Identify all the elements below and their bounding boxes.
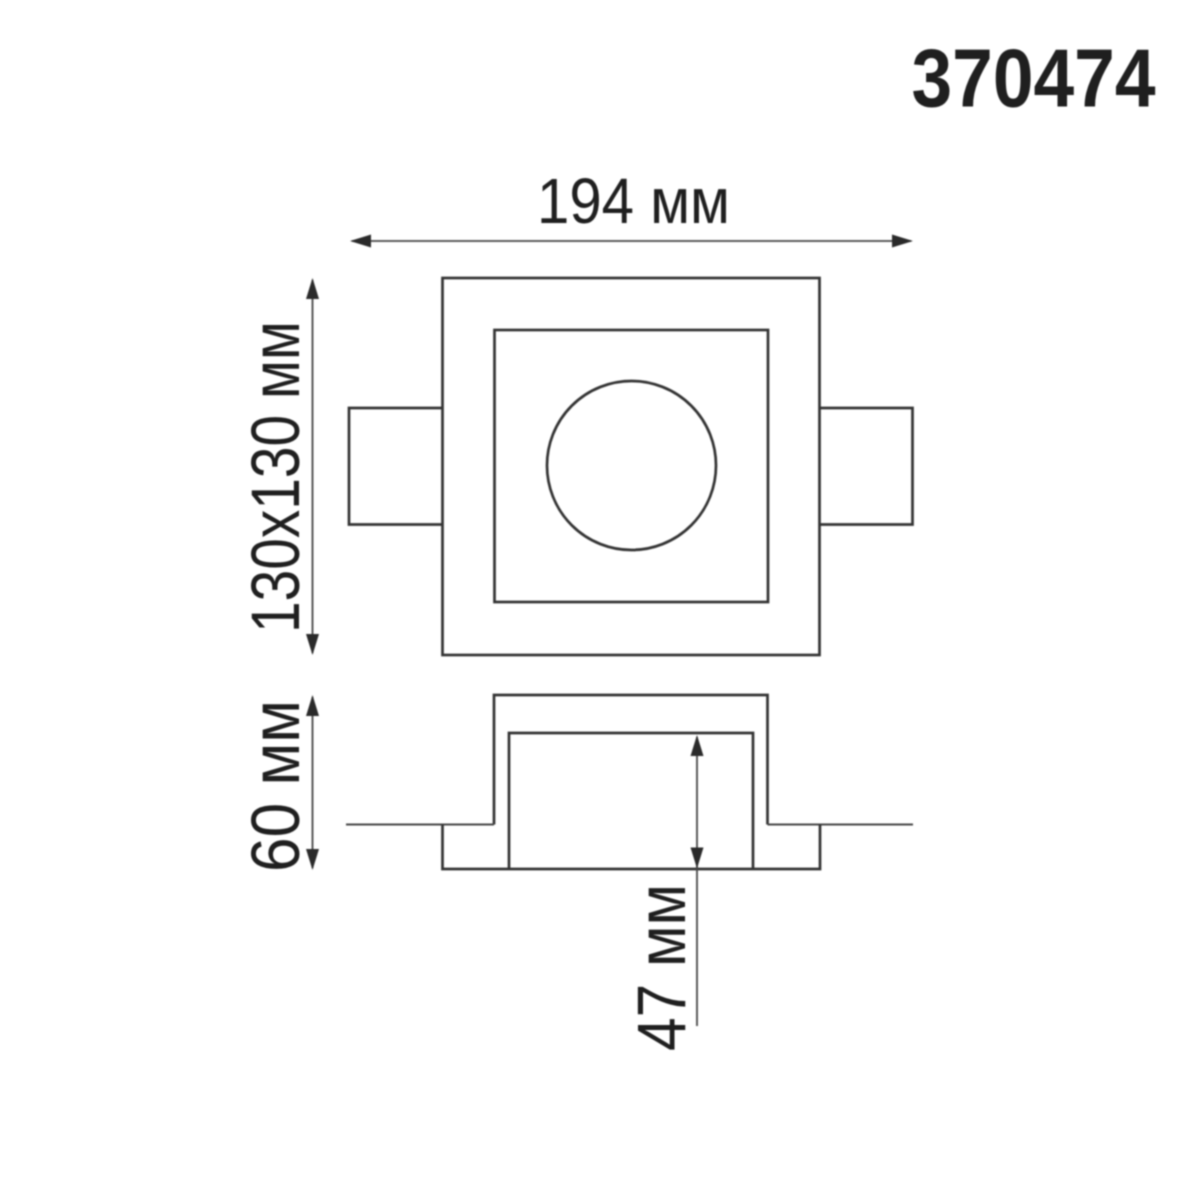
svg-text:60 мм: 60 мм <box>237 700 314 872</box>
svg-text:47 мм: 47 мм <box>623 884 700 1051</box>
svg-text:130x130 мм: 130x130 мм <box>237 321 314 633</box>
svg-text:194 мм: 194 мм <box>537 165 730 237</box>
svg-text:370474: 370474 <box>912 32 1156 125</box>
